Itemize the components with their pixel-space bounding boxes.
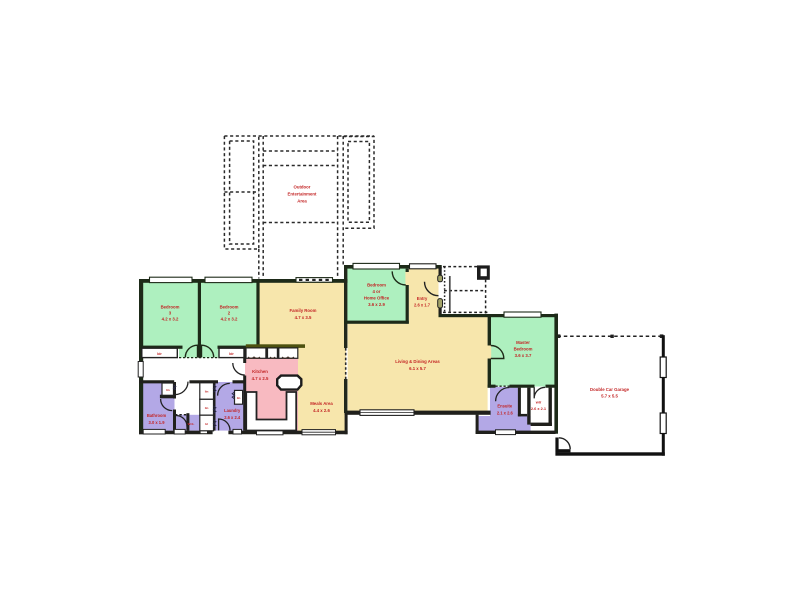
svg-text:bl: bl <box>205 422 208 426</box>
svg-text:Entertainment: Entertainment <box>288 192 317 197</box>
svg-text:bir: bir <box>229 352 234 356</box>
svg-text:lin: lin <box>205 406 209 410</box>
svg-text:Double Car Garage: Double Car Garage <box>590 387 630 392</box>
svg-text:4.7 x 3.5: 4.7 x 3.5 <box>295 315 312 320</box>
svg-text:lin: lin <box>237 396 241 400</box>
svg-text:2.1 x 2.6: 2.1 x 2.6 <box>497 411 514 416</box>
svg-text:Laundry: Laundry <box>224 408 241 413</box>
svg-text:bir: bir <box>157 352 162 356</box>
svg-text:Area: Area <box>297 199 307 204</box>
svg-text:4 or: 4 or <box>373 289 381 294</box>
svg-text:Bedroom: Bedroom <box>514 347 533 352</box>
svg-text:Outdoor: Outdoor <box>294 185 311 190</box>
svg-text:Bedroom: Bedroom <box>220 305 239 310</box>
svg-text:Ensuite: Ensuite <box>497 404 513 409</box>
svg-text:Meals Area: Meals Area <box>310 401 333 406</box>
svg-text:2.6 x 2.4: 2.6 x 2.4 <box>224 415 241 420</box>
svg-text:Home Office: Home Office <box>364 296 390 301</box>
svg-text:Living & Dining Areas: Living & Dining Areas <box>395 359 440 364</box>
svg-text:4.7 x 2.5: 4.7 x 2.5 <box>252 376 269 381</box>
svg-text:6.1 x 5.7: 6.1 x 5.7 <box>409 366 426 371</box>
svg-text:lin: lin <box>205 390 209 394</box>
svg-text:Bedroom: Bedroom <box>161 305 180 310</box>
svg-text:Bedroom: Bedroom <box>367 283 386 288</box>
svg-text:lin: lin <box>166 388 170 392</box>
svg-text:4.4 x 2.6: 4.4 x 2.6 <box>313 408 330 413</box>
svg-text:Bathroom: Bathroom <box>147 413 167 418</box>
svg-text:Master: Master <box>516 340 530 345</box>
svg-text:2.6 x 1.7: 2.6 x 1.7 <box>414 303 431 308</box>
svg-text:3.6 x 2.9: 3.6 x 2.9 <box>368 302 385 307</box>
svg-text:w.c.: w.c. <box>187 422 195 426</box>
svg-text:2.6 x 2.1: 2.6 x 2.1 <box>531 406 547 411</box>
svg-text:Kitchen: Kitchen <box>252 369 268 374</box>
svg-text:3.0 x 1.9: 3.0 x 1.9 <box>149 420 166 425</box>
svg-text:wir: wir <box>535 400 542 405</box>
svg-text:4.2 x 3.2: 4.2 x 3.2 <box>162 317 179 322</box>
svg-text:4.2 x 3.2: 4.2 x 3.2 <box>221 317 238 322</box>
svg-text:Entry: Entry <box>417 296 428 301</box>
svg-text:3.6 x 3.7: 3.6 x 3.7 <box>515 353 532 358</box>
svg-text:5.7 x 5.5: 5.7 x 5.5 <box>601 394 618 399</box>
svg-text:Family Room: Family Room <box>290 308 317 313</box>
